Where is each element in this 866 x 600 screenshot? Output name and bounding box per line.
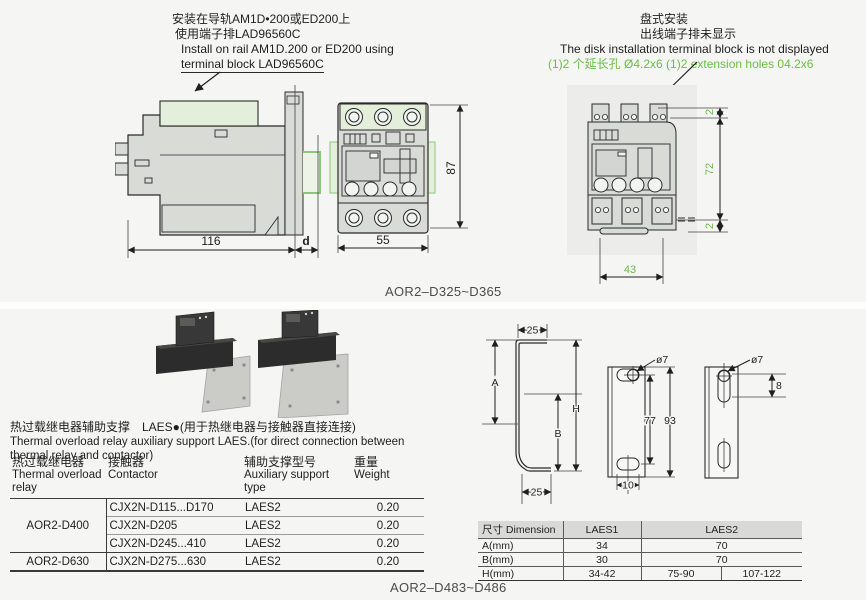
coil-terminal-tab xyxy=(115,143,128,155)
bracket-profile-drawing: 25 A B H 25 xyxy=(468,316,593,521)
panel-mount-drawing: 2 72 2 43 xyxy=(558,60,758,295)
cell-contactor-0: CJX2N-D115...D170 xyxy=(106,499,242,517)
laes-dimension-table: 尺寸 Dimension LAES1 LAES2 A(mm) 34 70 B(m… xyxy=(478,521,802,581)
cell-support-2: LAES2 xyxy=(242,535,352,553)
table-row: B(mm) 30 70 xyxy=(478,553,802,567)
header-support: 辅助支撑型号 Auxiliary support type xyxy=(242,455,352,499)
cell-relay-d630: AOR2-D630 xyxy=(10,553,106,572)
rail-install-note-cn-1: 安装在导轨AM1D•200或ED200上 xyxy=(172,12,394,27)
header-dimension: 尺寸 Dimension xyxy=(478,521,563,539)
leader-dia7 xyxy=(637,360,655,371)
cell-contactor-3: CJX2N-D275...630 xyxy=(106,553,242,572)
relay-front-view xyxy=(588,104,676,234)
table-row: A(mm) 34 70 xyxy=(478,539,802,553)
laes-title-cn: 热过载继电器辅助支撑 LAES●(用于热继电器与接触器直接连接) xyxy=(10,420,404,435)
cell-B-label: B(mm) xyxy=(478,553,563,567)
dim-10-label: 10 xyxy=(622,480,634,492)
dim-B-label: B xyxy=(554,428,561,440)
leader-arrow xyxy=(195,72,220,91)
coil-terminal-tab xyxy=(115,163,128,175)
cell-weight-3: 0.20 xyxy=(352,553,424,572)
dim-table-header-row: 尺寸 Dimension LAES1 LAES2 xyxy=(478,521,802,539)
contactor-front-view-drawing: 55 87 xyxy=(328,85,478,255)
rail-install-note-cn-2: 使用端子排LAD96560C xyxy=(175,27,394,42)
panel-install-note-cn-2: 出线端子排未显示 xyxy=(640,27,829,42)
cell-A-laes2: 70 xyxy=(641,539,802,553)
table-row: AOR2-D630 CJX2N-D275...630 LAES2 0.20 xyxy=(10,553,424,572)
cell-support-3: LAES2 xyxy=(242,553,352,572)
header-relay: 热过载继电器 Thermal overload relay xyxy=(10,455,106,499)
cell-support-0: LAES2 xyxy=(242,499,352,517)
header-relay-cn: 热过载继电器 xyxy=(12,455,104,469)
header-support-en: Auxiliary support type xyxy=(244,469,350,495)
product-photo-2 xyxy=(258,310,348,418)
bracket-plate xyxy=(608,367,645,477)
header-relay-en: Thermal overload relay xyxy=(12,469,104,495)
cell-weight-1: 0.20 xyxy=(352,517,424,535)
dim-43-label: 43 xyxy=(624,264,636,276)
cell-H-label: H(mm) xyxy=(478,567,563,581)
cell-weight-2: 0.20 xyxy=(352,535,424,553)
header-weight-cn: 重量 xyxy=(354,455,422,469)
dim-116-label: 116 xyxy=(201,234,220,248)
dia7-label-2: ø7 xyxy=(751,354,763,366)
model-range-top: AOR2–D325~D365 xyxy=(385,284,502,299)
leader-dia7 xyxy=(728,360,750,371)
dim-2-top-label: 2 xyxy=(704,109,716,115)
lower-block xyxy=(162,205,255,232)
bracket-plate xyxy=(705,367,738,478)
support-table-header-row: 热过载继电器 Thermal overload relay 接触器 Contac… xyxy=(10,455,424,499)
cell-contactor-1: CJX2N-D205 xyxy=(106,517,242,535)
dim-25-top-label: 25 xyxy=(527,325,539,337)
product-photo-1 xyxy=(156,312,250,412)
contactor-side-view-drawing: 116 d xyxy=(115,60,325,265)
dim-93-label: 93 xyxy=(664,415,676,427)
cell-support-1: LAES2 xyxy=(242,517,352,535)
cell-relay-d400: AOR2-D400 xyxy=(10,499,106,553)
dim-d-label: d xyxy=(302,234,309,248)
catalog-page: 安装在导轨AM1D•200或ED200上 使用端子排LAD96560C Inst… xyxy=(0,0,866,600)
table-row: AOR2-D400 CJX2N-D115...D170 LAES2 0.20 xyxy=(10,499,424,517)
panel-install-note-en-1: The disk installation terminal block is … xyxy=(560,42,829,57)
cell-H-laes2b: 107-122 xyxy=(721,567,802,581)
dim-8-label: 8 xyxy=(776,380,782,392)
slotted-bracket-drawing-2: ø7 8 xyxy=(698,318,828,488)
header-support-cn: 辅助支撑型号 xyxy=(244,455,350,469)
header-contactor-en: Contactor xyxy=(108,469,240,482)
header-contactor-cn: 接触器 xyxy=(108,455,240,469)
header-weight: 重量 Weight xyxy=(352,455,424,499)
cell-weight-0: 0.20 xyxy=(352,499,424,517)
product-photos xyxy=(138,310,368,418)
top-terminal-screws xyxy=(346,109,421,126)
cell-H-laes1: 34-42 xyxy=(563,567,641,581)
dia7-label-1: ø7 xyxy=(656,354,668,366)
rail-install-note-en-1: Install on rail AM1D.200 or ED200 using xyxy=(181,42,394,57)
cell-B-laes2: 70 xyxy=(641,553,802,567)
panel-install-note-cn-1: 盘式安装 xyxy=(640,12,829,27)
dim-A-label: A xyxy=(491,377,498,389)
header-contactor: 接触器 Contactor xyxy=(106,455,242,499)
model-range-bottom: AOR2–D483~D486 xyxy=(390,580,507,595)
support-selection-table: 热过载继电器 Thermal overload relay 接触器 Contac… xyxy=(10,455,424,572)
dim-25-bottom-label: 25 xyxy=(531,487,543,499)
header-laes1: LAES1 xyxy=(563,521,641,539)
dim-77-label: 77 xyxy=(644,415,656,427)
bottom-terminal-screws xyxy=(346,210,421,227)
dim-87-label: 87 xyxy=(444,161,458,175)
dim-72-label: 72 xyxy=(704,163,716,175)
laes-title-en-1: Thermal overload relay auxiliary support… xyxy=(10,435,404,450)
cell-A-laes1: 34 xyxy=(563,539,641,553)
terminal-block-lad96560c xyxy=(160,101,258,126)
cell-B-laes1: 30 xyxy=(563,553,641,567)
cell-A-label: A(mm) xyxy=(478,539,563,553)
cell-H-laes2a: 75-90 xyxy=(641,567,721,581)
header-laes2: LAES2 xyxy=(641,521,802,539)
slotted-bracket-drawing-1: ø7 77 93 10 xyxy=(593,318,708,498)
ext-lines xyxy=(482,324,582,504)
din-rail-clip xyxy=(303,152,320,193)
mounting-plate xyxy=(285,92,303,235)
header-weight-en: Weight xyxy=(354,469,422,482)
cell-contactor-2: CJX2N-D245...410 xyxy=(106,535,242,553)
bracket-profile xyxy=(516,340,551,471)
table-row: H(mm) 34-42 75-90 107-122 xyxy=(478,567,802,581)
dim-2-bottom-label: 2 xyxy=(704,223,716,229)
section-divider xyxy=(0,302,866,309)
dim-H-label: H xyxy=(572,403,580,415)
dim-55-label: 55 xyxy=(376,233,390,247)
